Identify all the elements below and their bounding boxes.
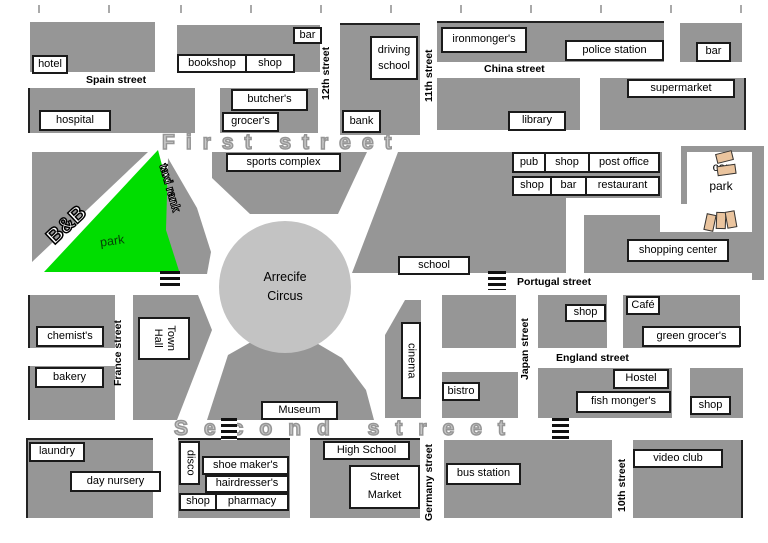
ruler-tick (250, 5, 252, 13)
street-france: France street (112, 320, 124, 386)
label-butchers: butcher's (231, 89, 308, 111)
label-high-school: High School (323, 441, 410, 460)
zebra-crossing (221, 418, 237, 440)
label-grocers: grocer's (222, 112, 279, 132)
circus-name-line1: Arrecife (263, 268, 306, 287)
label-shop-bookshop: shop (245, 54, 295, 73)
car-icon (725, 210, 738, 228)
label-shop-portugal: shop (565, 304, 606, 322)
label-bar-mid: bar (550, 176, 587, 196)
street-portugal: Portugal street (517, 276, 591, 288)
map-right-edge (752, 146, 764, 280)
label-supermarket: supermarket (627, 79, 735, 98)
label-hospital: hospital (39, 110, 111, 131)
label-hostel: Hostel (613, 369, 669, 389)
car-park-label: car park (692, 158, 750, 196)
label-cinema: cinema (401, 322, 421, 399)
label-driving-school: driving school (370, 36, 418, 80)
ruler-tick (320, 5, 322, 13)
label-pharmacy: pharmacy (215, 493, 289, 511)
zebra-crossing (488, 271, 506, 290)
label-shop-disco: shop (179, 493, 217, 511)
label-bistro: bistro (442, 382, 480, 401)
ruler-tick (38, 5, 40, 13)
street-germany: Germany street (423, 444, 435, 521)
label-day-nursery: day nursery (70, 471, 161, 492)
label-hairdressers: hairdresser's (205, 475, 289, 493)
street-japan: Japan street (519, 318, 531, 380)
street-spain: Spain street (86, 74, 146, 86)
label-hotel: hotel (32, 55, 68, 74)
label-school: school (398, 256, 470, 275)
label-restaurant: restaurant (585, 176, 660, 196)
street-12th: 12th street (320, 47, 332, 100)
label-town-hall: Town Hall (138, 317, 190, 360)
street-10th: 10th street (616, 459, 628, 512)
car-icon (703, 213, 716, 232)
zebra-crossing (160, 271, 180, 288)
label-pub: pub (512, 152, 546, 173)
label-bank: bank (342, 110, 381, 133)
ruler-tick (740, 5, 742, 13)
town-map: Arrecife Circus First street Second stre… (0, 0, 768, 543)
driving-school-line1: driving (378, 42, 410, 59)
car-park-fence-left (681, 146, 687, 204)
label-shopping-center: shopping center (627, 239, 729, 262)
street-china: China street (484, 63, 545, 75)
label-fish-mongers: fish monger's (576, 391, 671, 413)
zebra-crossing (552, 418, 569, 440)
label-police-station: police station (565, 40, 664, 61)
label-laundry: laundry (29, 442, 85, 462)
ruler-tick (390, 5, 392, 13)
label-video-club: video club (633, 449, 723, 468)
town-hall-line2: Hall (151, 326, 164, 352)
arrecife-circus: Arrecife Circus (219, 221, 351, 353)
street-11th: 11th street (423, 49, 435, 102)
label-library: library (508, 111, 566, 131)
ruler-tick (108, 5, 110, 13)
disco-text: disco (184, 450, 196, 476)
street-first: First street (162, 131, 403, 155)
driving-school-line2: school (378, 58, 410, 75)
label-shop-bar-row: shop (512, 176, 552, 196)
label-sports-complex: sports complex (226, 153, 341, 172)
block-unlabeled (442, 295, 516, 348)
label-shop-england: shop (690, 396, 731, 415)
ruler-tick (600, 5, 602, 13)
car-park-fence-top (681, 146, 753, 152)
label-cafe: Café (626, 296, 660, 315)
ruler-tick (530, 5, 532, 13)
ruler-tick (670, 5, 672, 13)
label-shop-pub-row: shop (544, 152, 590, 173)
label-street-market: Street Market (349, 465, 420, 509)
label-bookshop: bookshop (177, 54, 247, 73)
ruler-tick (460, 5, 462, 13)
label-bar-top-right: bar (696, 42, 731, 62)
cinema-text: cinema (405, 343, 417, 378)
label-post-office: post office (588, 152, 660, 173)
town-hall-text: Town Hall (151, 326, 177, 352)
label-ironmongers: ironmonger's (441, 27, 527, 53)
label-disco: disco (179, 441, 200, 485)
circus-name-line2: Circus (267, 287, 302, 306)
ruler-tick (180, 5, 182, 13)
label-bakery: bakery (35, 367, 104, 388)
street-market-line2: Market (368, 487, 402, 505)
label-chemists: chemist's (36, 326, 104, 347)
car-park-line2: park (692, 177, 750, 196)
label-bar-top-left: bar (293, 27, 322, 44)
street-england: England street (556, 352, 629, 364)
label-museum: Museum (261, 401, 338, 420)
town-hall-line1: Town (164, 326, 177, 352)
label-green-grocers: green grocer's (642, 326, 741, 347)
label-shoe-makers: shoe maker's (202, 456, 289, 475)
street-market-line1: Street (370, 469, 399, 487)
label-bus-station: bus station (446, 463, 521, 485)
